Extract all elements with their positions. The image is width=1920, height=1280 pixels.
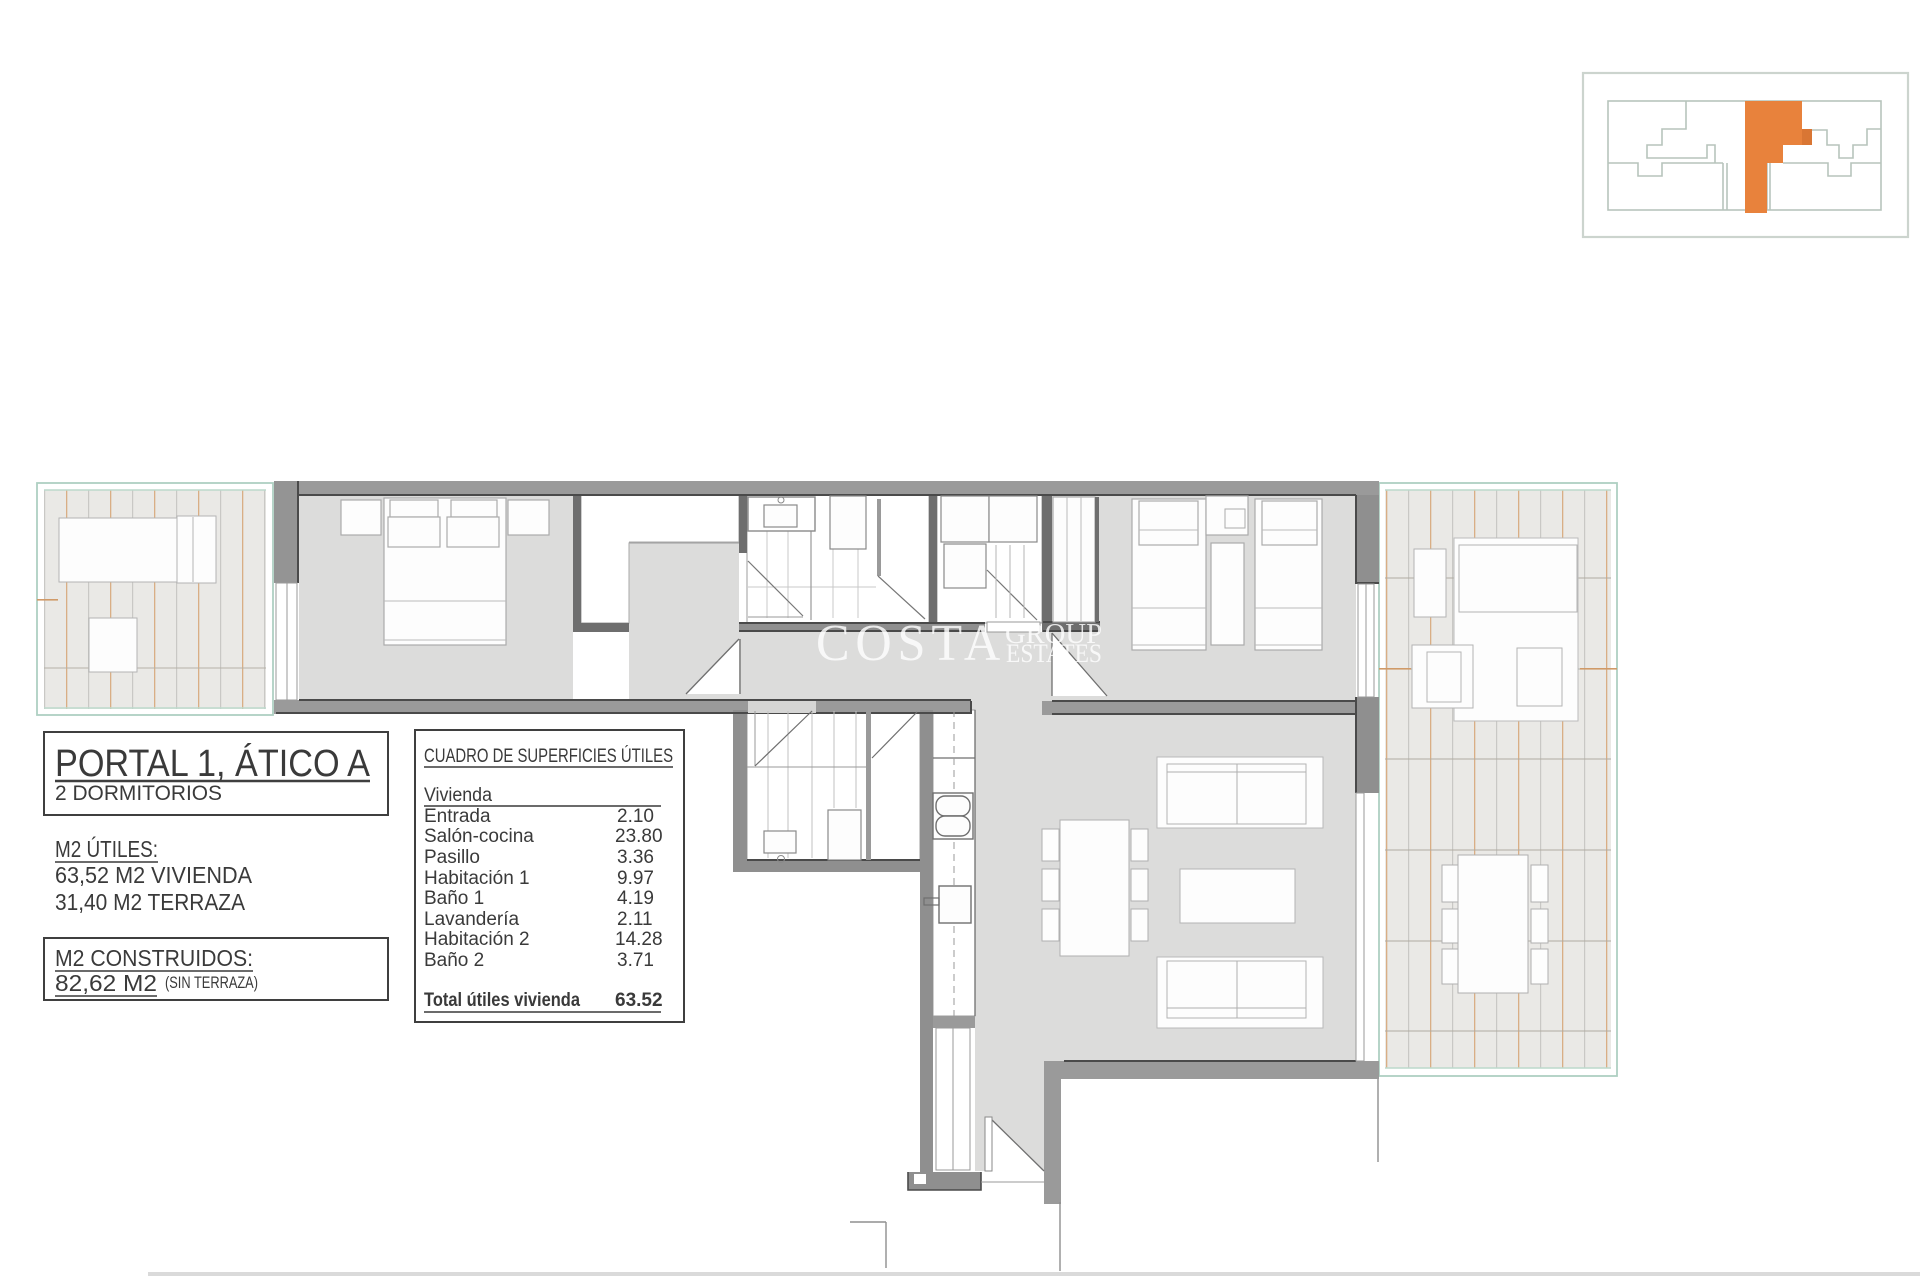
svg-text:M2 ÚTILES:: M2 ÚTILES: [55, 836, 158, 862]
svg-text:23.80: 23.80 [615, 826, 663, 847]
svg-text:Lavandería: Lavandería [424, 909, 520, 930]
svg-text:PORTAL 1, ÁTICO A: PORTAL 1, ÁTICO A [55, 742, 371, 785]
svg-text:(SIN TERRAZA): (SIN TERRAZA) [165, 974, 258, 992]
svg-text:Baño 1: Baño 1 [424, 888, 484, 909]
svg-text:Entrada: Entrada [424, 806, 491, 827]
svg-text:Baño 2: Baño 2 [424, 950, 484, 971]
svg-text:COSTA: COSTA [816, 615, 1006, 672]
svg-text:Salón-cocina: Salón-cocina [424, 826, 534, 847]
svg-text:3.71: 3.71 [617, 950, 654, 971]
svg-text:31,40 M2 TERRAZA: 31,40 M2 TERRAZA [55, 889, 246, 915]
svg-text:63.52: 63.52 [615, 990, 663, 1011]
svg-text:63,52 M2 VIVIENDA: 63,52 M2 VIVIENDA [55, 862, 253, 888]
svg-text:Habitación 2: Habitación 2 [424, 929, 530, 950]
svg-text:Pasillo: Pasillo [424, 847, 480, 868]
svg-text:2.10: 2.10 [617, 806, 654, 827]
svg-text:14.28: 14.28 [615, 929, 663, 950]
svg-text:4.19: 4.19 [617, 888, 654, 909]
svg-text:Vivienda: Vivienda [424, 785, 492, 806]
svg-text:Habitación 1: Habitación 1 [424, 868, 530, 889]
svg-text:3.36: 3.36 [617, 847, 654, 868]
svg-text:M2 CONSTRUIDOS:: M2 CONSTRUIDOS: [55, 945, 253, 971]
svg-text:9.97: 9.97 [617, 868, 654, 889]
svg-text:ESTATES: ESTATES [1006, 639, 1102, 668]
svg-text:CUADRO DE SUPERFICIES ÚTILES: CUADRO DE SUPERFICIES ÚTILES [424, 745, 673, 767]
svg-text:2.11: 2.11 [617, 909, 653, 930]
svg-text:82,62 M2: 82,62 M2 [55, 970, 157, 996]
svg-text:Total útiles vivienda: Total útiles vivienda [424, 990, 580, 1011]
svg-text:2 DORMITORIOS: 2 DORMITORIOS [55, 782, 222, 805]
